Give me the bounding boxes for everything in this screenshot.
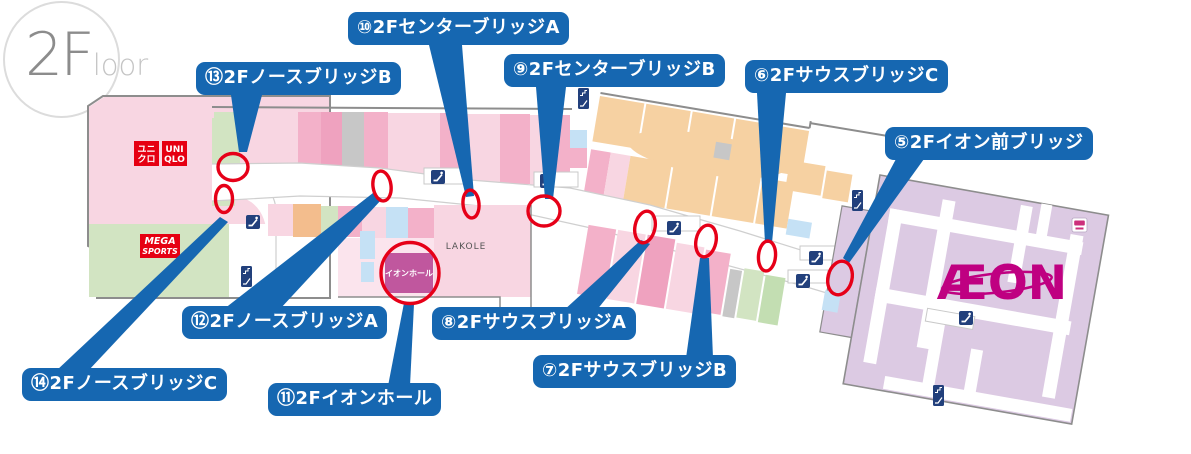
escalator-icon xyxy=(796,274,810,288)
floor-map-page: 2F loor xyxy=(0,0,1191,454)
restroom-icon xyxy=(1072,218,1087,232)
uniqlo-logo-en: UNI QLO xyxy=(162,141,187,166)
map-label-12[interactable]: ⑫2FノースブリッジA xyxy=(182,306,387,339)
escalator-icon xyxy=(246,215,260,229)
map-label-5[interactable]: ⑤2Fイオン前ブリッジ xyxy=(885,127,1093,160)
uniqlo-logo-jp: ユニ クロ xyxy=(134,141,159,166)
escalator-icon xyxy=(431,170,445,184)
stairs-icon xyxy=(852,190,863,211)
mega-sports-logo: MEGA SPORTS xyxy=(140,234,180,258)
map-label-10[interactable]: ⑩2FセンターブリッジA xyxy=(348,12,569,45)
mega-sports-line2: SPORTS xyxy=(142,247,178,256)
stairs-icon xyxy=(241,266,252,287)
map-label-6[interactable]: ⑥2FサウスブリッジC xyxy=(745,60,948,93)
escalator-icon xyxy=(959,311,973,325)
lakole-label: LAKOLE xyxy=(446,242,487,252)
aeon-logo-text: ÆON xyxy=(937,256,1067,311)
aeon-logo: ÆON xyxy=(937,256,1067,311)
escalator-icon xyxy=(667,221,681,235)
escalator-icon xyxy=(809,251,823,265)
map-label-14[interactable]: ⑭2FノースブリッジC xyxy=(22,368,227,401)
uniqlo-en-line2: QLO xyxy=(164,155,185,165)
stairs-icon xyxy=(578,88,589,109)
label-pointer-11 xyxy=(388,303,414,386)
uniqlo-jp-line1: ユニ xyxy=(137,145,155,155)
map-label-11[interactable]: ⑪2Fイオンホール xyxy=(268,383,441,416)
stairs-icon xyxy=(933,385,944,406)
map-label-9[interactable]: ⑨2FセンターブリッジB xyxy=(504,54,725,87)
map-label-8[interactable]: ⑧2FサウスブリッジA xyxy=(432,307,636,340)
aeon-hall-label: イオンホール xyxy=(385,269,433,278)
map-label-7[interactable]: ⑦2FサウスブリッジB xyxy=(533,355,736,388)
uniqlo-jp-line2: クロ xyxy=(137,154,155,165)
aeon-hall-area: イオンホール xyxy=(385,253,433,293)
uniqlo-en-line1: UNI xyxy=(165,145,183,155)
map-label-13[interactable]: ⑬2FノースブリッジB xyxy=(196,62,401,95)
mega-sports-line1: MEGA xyxy=(144,236,175,247)
